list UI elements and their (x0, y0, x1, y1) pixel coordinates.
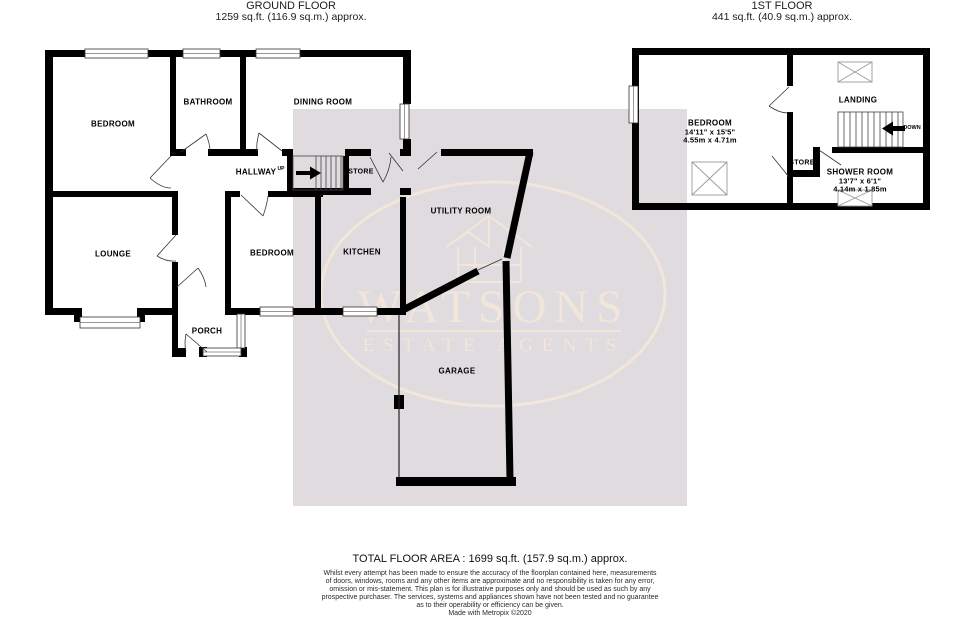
ground-floor-area: 1259 sq.ft. (116.9 sq.m.) approx. (216, 11, 367, 23)
first-floor-window (629, 86, 638, 123)
shower-dims-metric: 4.14m x 1.85m (833, 185, 886, 194)
room-label-kitchen: KITCHEN (343, 248, 381, 257)
floorplan-page: WATSONS ESTATE AGENTS (0, 0, 980, 617)
disclaimer-line: of doors, windows, rooms and any other i… (326, 578, 655, 585)
room-label-store-ground: STORE (348, 169, 374, 176)
room-label-landing: LANDING (839, 96, 878, 105)
room-label-bedroom1: BEDROOM (91, 120, 135, 129)
disclaimer-line: prospective purchaser. The services, sys… (322, 594, 659, 601)
first-floor-area: 441 sq.ft. (40.9 sq.m.) approx. (712, 11, 852, 23)
room-label-bathroom: BATHROOM (184, 98, 233, 107)
room-label-utility: UTILITY ROOM (431, 207, 492, 216)
room-label-store-first: STORE (789, 160, 815, 167)
room-label-hallway: HALLWAY (236, 168, 276, 177)
stairs-up-label: UP (278, 166, 285, 172)
stairs-down-arrow (882, 122, 905, 136)
watermark-tagline: ESTATE AGENTS (363, 335, 626, 356)
first-floor-stairs (838, 112, 905, 147)
floorplan-canvas: WATSONS ESTATE AGENTS (0, 0, 980, 617)
room-label-dining: DINING ROOM (294, 98, 352, 107)
disclaimer-line: as to their operability or efficiency ca… (416, 602, 563, 609)
credit-line: Made with Metropix ©2020 (448, 610, 531, 617)
landing-skylight (838, 62, 872, 82)
room-label-bedroom2: BEDROOM (250, 249, 294, 258)
room-label-garage: GARAGE (439, 367, 476, 376)
disclaimer-line: Whilst every attempt has been made to en… (323, 570, 656, 577)
room-label-bedroom-first: BEDROOM (688, 119, 732, 128)
disclaimer-line: omission or mis-statement. This plan is … (329, 586, 650, 593)
total-floor-area: TOTAL FLOOR AREA : 1699 sq.ft. (157.9 sq… (353, 553, 628, 565)
room-label-porch: PORCH (192, 327, 222, 336)
room-label-lounge: LOUNGE (95, 250, 131, 259)
room-label-shower: SHOWER ROOM (827, 168, 893, 177)
bedroom-skylight (692, 162, 727, 195)
bedroom-dims-metric: 4.55m x 4.71m (683, 136, 736, 145)
stairs-down-label: DOWN (903, 125, 920, 131)
watermark-divider (367, 330, 621, 332)
